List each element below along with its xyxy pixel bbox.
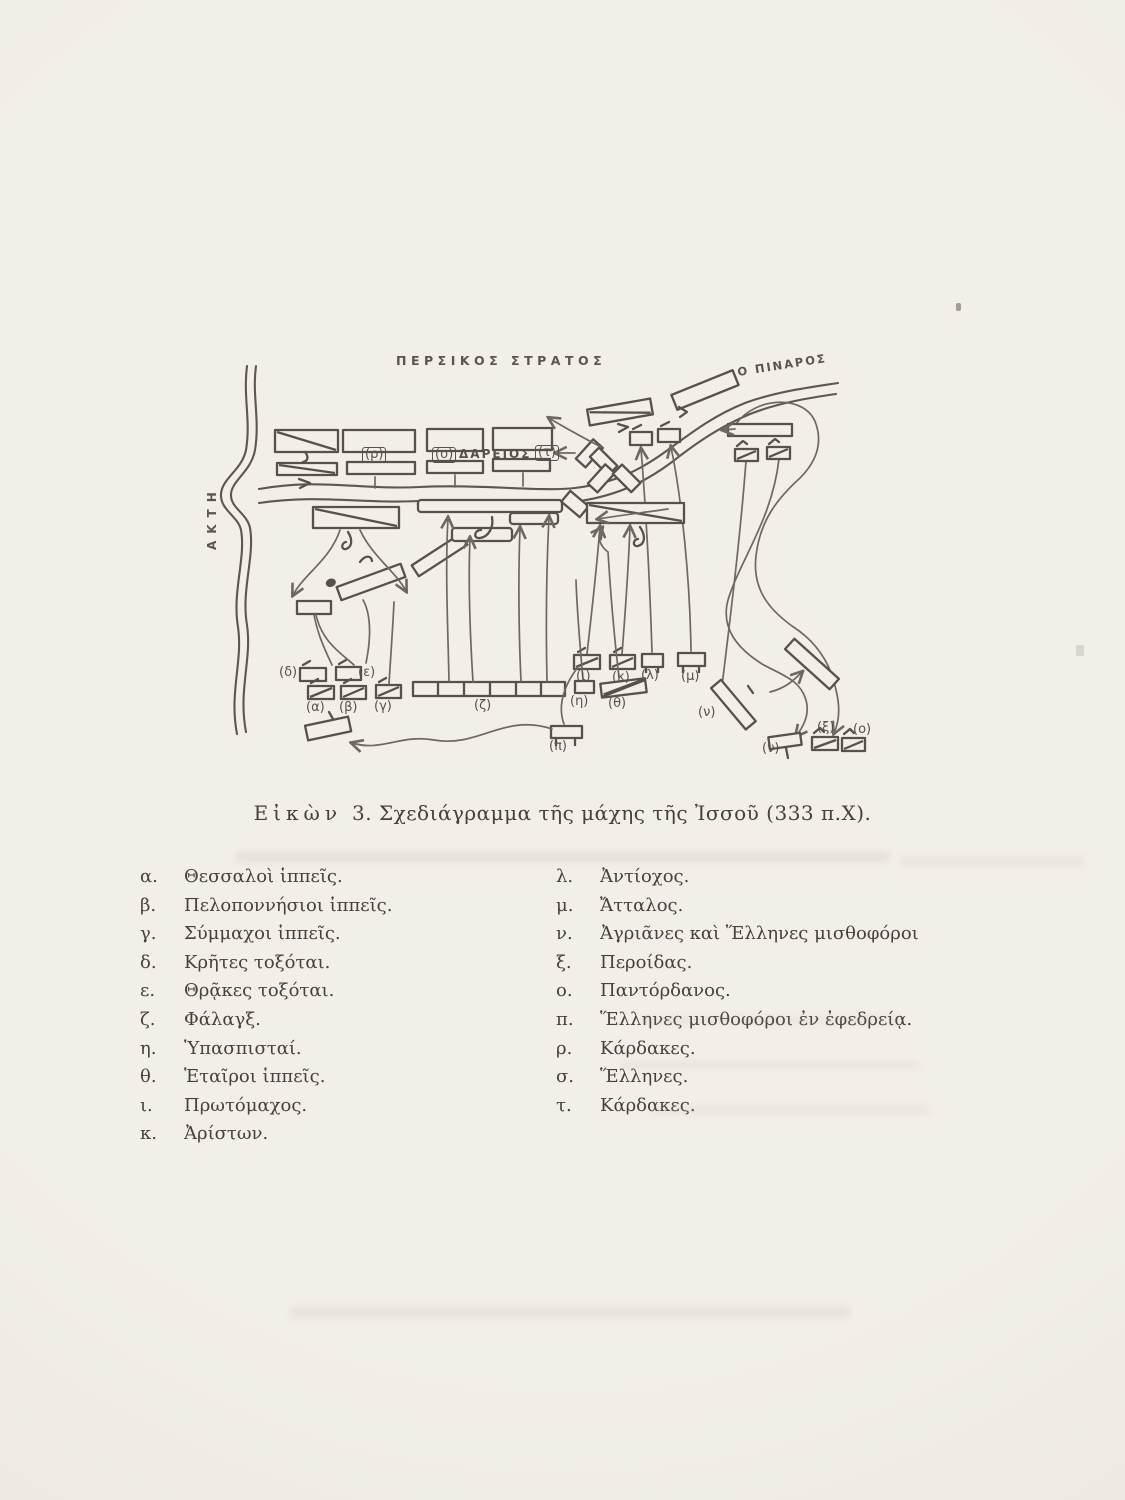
legend-letter: γ. — [140, 923, 184, 944]
unit-label-epsilon: (ε) — [358, 666, 375, 679]
legend-item: θ.Ἑταῖροι ἱππεῖς. — [140, 1066, 392, 1095]
legend-letter: ι. — [140, 1095, 184, 1116]
legend-text: Ἑταῖροι ἱππεῖς. — [184, 1066, 325, 1087]
persian-army-label: ΠΕΡΣΙΚΟΣ ΣΤΡΑΤΟΣ — [396, 355, 606, 368]
unit-label-omicron: (ο) — [853, 723, 871, 736]
unit-label-gamma: (γ) — [374, 700, 392, 713]
legend-letter: ξ. — [556, 952, 600, 973]
legend-text: Κάρδακες. — [600, 1038, 696, 1059]
unit-label-mu: (μ) — [681, 670, 699, 683]
unit-label-zeta: (ζ) — [474, 699, 491, 712]
unit-label-sigma: (σ) — [432, 447, 456, 463]
legend-letter: π. — [556, 1009, 600, 1030]
legend-text: Περοίδας. — [600, 952, 692, 973]
legend-text: Ὑπασπισταί. — [184, 1038, 302, 1059]
legend-item: ν.Ἀγριᾶνες καὶ Ἕλληνες μισθοφόροι — [556, 923, 919, 952]
legend-letter: ε. — [140, 980, 184, 1001]
legend-text: Ἀρίστων. — [184, 1123, 268, 1144]
legend-letter: σ. — [556, 1066, 600, 1087]
unit-label-rho: (ρ) — [362, 447, 386, 463]
unit-label-nu-1: (ν) — [698, 706, 715, 719]
legend-letter: θ. — [140, 1066, 184, 1087]
legend-right-column: λ.Ἀντίοχος. μ.Ἄτταλος. ν.Ἀγριᾶνες καὶ Ἕλ… — [556, 866, 919, 1123]
legend-letter: β. — [140, 895, 184, 916]
bleed-through-smudge — [290, 1306, 850, 1319]
unit-label-eta: (η) — [570, 695, 588, 708]
unit-label-tau: (τ) — [535, 445, 559, 461]
legend-letter: ζ. — [140, 1009, 184, 1030]
unit-label-theta: (θ) — [608, 697, 626, 710]
unit-label-beta: (β) — [339, 701, 357, 714]
ink-speck — [1076, 645, 1084, 656]
legend-letter: α. — [140, 866, 184, 887]
unit-label-iota: (ι) — [576, 670, 591, 683]
legend-item: α.Θεσσαλοὶ ἱππεῖς. — [140, 866, 392, 895]
legend-letter: ρ. — [556, 1038, 600, 1059]
scanned-page: ΠΕΡΣΙΚΟΣ ΣΤΡΑΤΟΣ Ο ΠΙΝΑΡΟΣ ΑΚΤΗ ΔΑΡΕΙΟΣ … — [0, 0, 1125, 1500]
legend-item: σ.Ἕλληνες. — [556, 1066, 919, 1095]
legend-text: Θρᾷκες τοξόται. — [184, 980, 334, 1001]
coastline — [221, 366, 257, 734]
legend-item: δ.Κρῆτες τοξόται. — [140, 952, 392, 981]
legend-letter: η. — [140, 1038, 184, 1059]
legend-letter: κ. — [140, 1123, 184, 1144]
legend-item: μ.Ἄτταλος. — [556, 895, 919, 924]
unit-label-alpha: (α) — [306, 701, 325, 714]
legend-letter: ο. — [556, 980, 600, 1001]
legend-letter: μ. — [556, 895, 600, 916]
legend-left-column: α.Θεσσαλοὶ ἱππεῖς. β.Πελοποννήσιοι ἱππεῖ… — [140, 866, 392, 1152]
unit-label-lambda: (λ) — [641, 669, 659, 682]
legend-text: Σύμμαχοι ἱππεῖς. — [184, 923, 341, 944]
legend-letter: δ. — [140, 952, 184, 973]
unit-label-pi: (π) — [549, 740, 567, 753]
legend-text: Πελοποννήσιοι ἱππεῖς. — [184, 895, 392, 916]
legend-item: η.Ὑπασπισταί. — [140, 1038, 392, 1067]
legend-item: ζ.Φάλαγξ. — [140, 1009, 392, 1038]
legend-item: γ.Σύμμαχοι ἱππεῖς. — [140, 923, 392, 952]
bleed-through-smudge — [650, 1105, 930, 1115]
legend-letter: τ. — [556, 1095, 600, 1116]
legend-text: Ἀγριᾶνες καὶ Ἕλληνες μισθοφόροι — [600, 923, 919, 944]
legend-item: ε.Θρᾷκες τοξόται. — [140, 980, 392, 1009]
legend-text: Ἀντίοχος. — [600, 866, 689, 887]
legend-letter: ν. — [556, 923, 600, 944]
legend-text: Θεσσαλοὶ ἱππεῖς. — [184, 866, 343, 887]
ink-speck — [956, 303, 961, 311]
figure-caption: Εἰκὼν3. Σχεδιάγραμμα τῆς μάχης τῆς Ἰσσοῦ… — [0, 801, 1125, 825]
legend-text: Ἄτταλος. — [600, 895, 683, 916]
legend-item: κ.Ἀρίστων. — [140, 1123, 392, 1152]
bleed-through-smudge — [640, 1015, 900, 1025]
figure-caption-word: Εἰκὼν — [254, 801, 342, 825]
figure-caption-text: 3. Σχεδιάγραμμα τῆς μάχης τῆς Ἰσσοῦ (333… — [352, 801, 871, 825]
darius-label: ΔΑΡΕΙΟΣ — [459, 448, 531, 460]
bleed-through-smudge — [900, 856, 1085, 867]
legend-item: λ.Ἀντίοχος. — [556, 866, 919, 895]
coast-label: ΑΚΤΗ — [206, 485, 218, 550]
legend-item: ο.Παντόρδανος. — [556, 980, 919, 1009]
unit-label-delta: (δ) — [279, 666, 297, 679]
legend-item: ξ.Περοίδας. — [556, 952, 919, 981]
legend-item: ι.Πρωτόμαχος. — [140, 1095, 392, 1124]
legend-text: Φάλαγξ. — [184, 1009, 261, 1030]
unit-label-xi: (ξ) — [817, 721, 834, 734]
bleed-through-smudge — [235, 851, 890, 863]
unit-label-kappa: (κ) — [612, 671, 630, 684]
legend-text: Κρῆτες τοξόται. — [184, 952, 330, 973]
bleed-through-smudge — [620, 1060, 920, 1070]
legend-item: β.Πελοποννήσιοι ἱππεῖς. — [140, 895, 392, 924]
legend-text: Πρωτόμαχος. — [184, 1095, 307, 1116]
legend-letter: λ. — [556, 866, 600, 887]
unit-label-nu-2: (ν) — [762, 742, 779, 755]
legend-text: Παντόρδανος. — [600, 980, 731, 1001]
